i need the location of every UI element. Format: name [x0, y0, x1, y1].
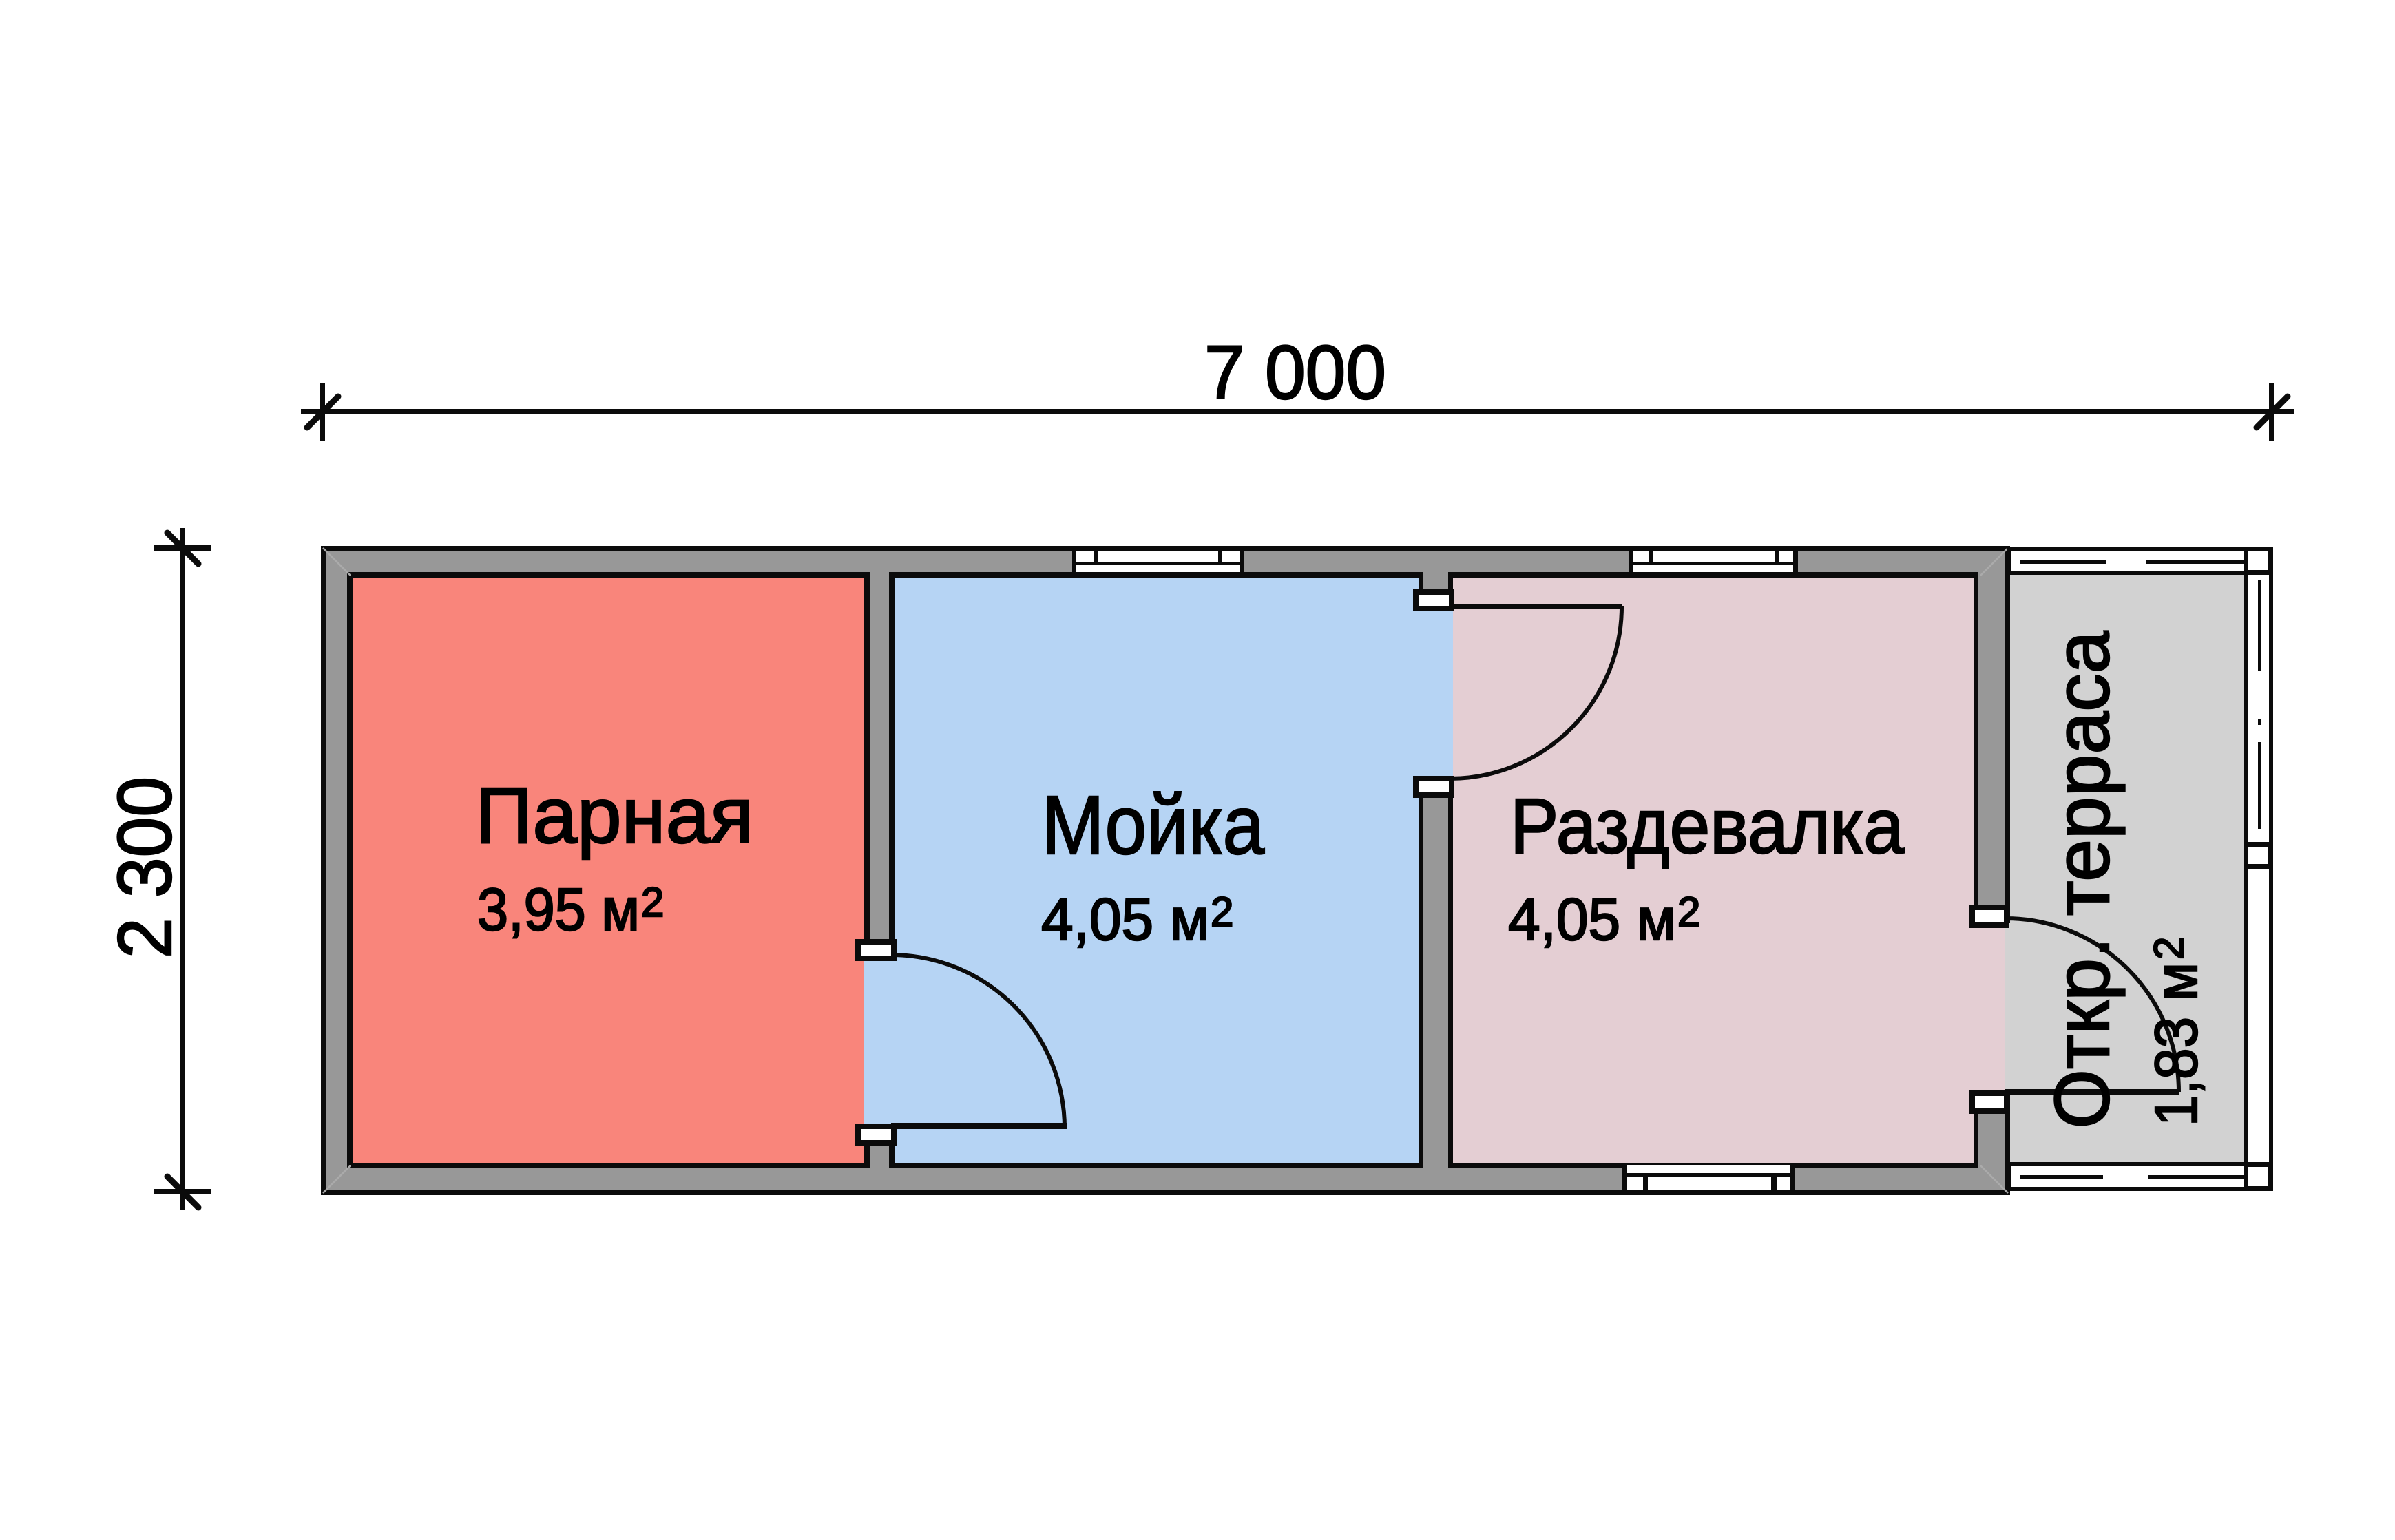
svg-text:4,05 м: 4,05 м [1041, 887, 1209, 953]
svg-text:2: 2 [2146, 937, 2192, 960]
svg-text:2 300: 2 300 [103, 777, 187, 958]
svg-text:2: 2 [1677, 889, 1700, 935]
svg-text:7 000: 7 000 [1204, 330, 1386, 415]
svg-text:2: 2 [1211, 889, 1233, 935]
svg-text:Парная: Парная [475, 772, 753, 860]
svg-text:4,05 м: 4,05 м [1508, 887, 1676, 953]
svg-text:3,95 м: 3,95 м [477, 876, 640, 943]
svg-text:1,83 м: 1,83 м [2143, 962, 2210, 1126]
svg-text:Откр. терраса: Откр. терраса [2039, 631, 2125, 1129]
svg-text:Раздевалка: Раздевалка [1510, 783, 1904, 869]
svg-text:2: 2 [641, 879, 664, 925]
svg-text:Мойка: Мойка [1042, 778, 1265, 872]
